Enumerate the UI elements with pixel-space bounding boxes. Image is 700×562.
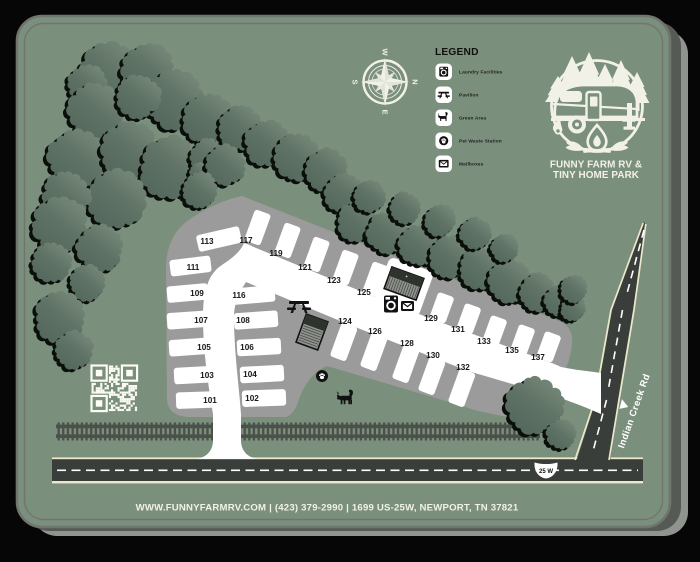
- svg-text:117: 117: [239, 236, 253, 245]
- svg-text:Pet Waste Station: Pet Waste Station: [459, 139, 502, 145]
- svg-text:119: 119: [269, 249, 283, 258]
- svg-text:109: 109: [190, 289, 204, 298]
- svg-text:Green Area: Green Area: [459, 116, 486, 122]
- svg-text:129: 129: [424, 314, 438, 323]
- svg-text:102: 102: [245, 394, 259, 403]
- svg-text:TINY HOME PARK: TINY HOME PARK: [553, 170, 640, 181]
- svg-text:108: 108: [236, 316, 250, 325]
- svg-text:131: 131: [451, 325, 465, 334]
- svg-text:Mailboxes: Mailboxes: [459, 162, 484, 168]
- svg-text:132: 132: [456, 363, 470, 372]
- svg-text:128: 128: [400, 339, 414, 348]
- svg-text:130: 130: [426, 351, 440, 360]
- svg-text:116: 116: [232, 291, 246, 300]
- svg-text:126: 126: [368, 327, 382, 336]
- svg-text:106: 106: [240, 343, 254, 352]
- svg-text:125: 125: [357, 288, 371, 297]
- svg-text:LEGEND: LEGEND: [435, 47, 479, 58]
- svg-text:25 W: 25 W: [539, 469, 553, 475]
- svg-text:Pavilion: Pavilion: [459, 93, 479, 99]
- svg-text:Laundry Facilities: Laundry Facilities: [459, 70, 503, 76]
- svg-text:137: 137: [531, 353, 545, 362]
- svg-text:104: 104: [243, 370, 257, 379]
- svg-text:101: 101: [203, 396, 217, 405]
- svg-text:111: 111: [187, 263, 200, 272]
- svg-text:107: 107: [194, 316, 208, 325]
- svg-text:103: 103: [200, 371, 214, 380]
- svg-text:135: 135: [505, 346, 519, 355]
- svg-text:N: N: [411, 79, 420, 84]
- svg-text:124: 124: [338, 317, 352, 326]
- svg-text:WWW.FUNNYFARMRV.COM | (423) 37: WWW.FUNNYFARMRV.COM | (423) 379-2990 | 1…: [136, 503, 519, 514]
- svg-text:FUNNY FARM RV &: FUNNY FARM RV &: [550, 160, 642, 171]
- svg-text:W: W: [380, 48, 389, 56]
- svg-text:121: 121: [298, 263, 312, 272]
- svg-text:105: 105: [197, 343, 211, 352]
- svg-text:133: 133: [477, 337, 491, 346]
- svg-text:113: 113: [200, 237, 214, 246]
- svg-text:S: S: [351, 79, 360, 84]
- svg-text:123: 123: [327, 276, 341, 285]
- svg-text:E: E: [380, 109, 389, 114]
